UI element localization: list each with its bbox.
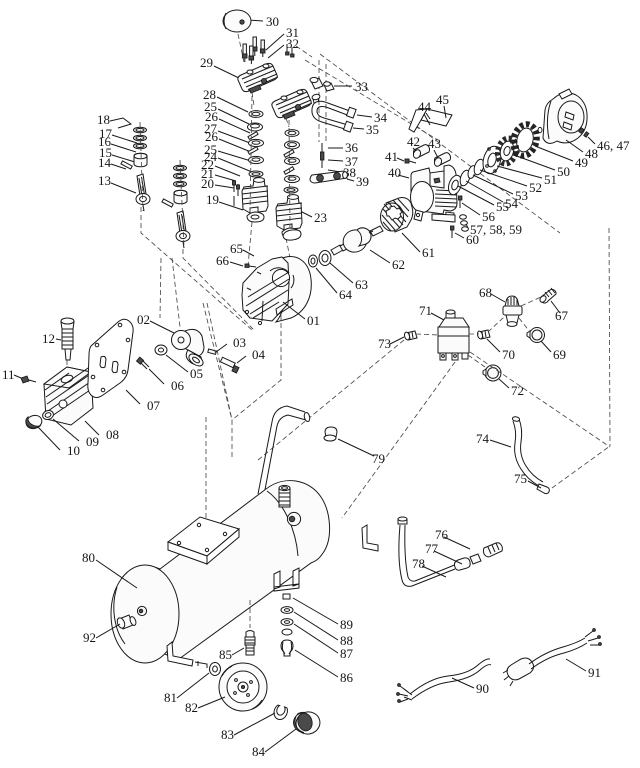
svg-text:04: 04 [252, 347, 266, 362]
svg-text:91: 91 [588, 665, 601, 680]
svg-text:45: 45 [436, 92, 449, 107]
svg-text:63: 63 [355, 277, 368, 292]
svg-text:71: 71 [419, 303, 432, 318]
svg-text:41: 41 [385, 149, 398, 164]
svg-text:68: 68 [479, 285, 492, 300]
svg-text:74: 74 [476, 431, 490, 446]
svg-text:36: 36 [345, 140, 359, 155]
svg-text:75: 75 [514, 471, 527, 486]
svg-text:19: 19 [206, 192, 219, 207]
svg-text:84: 84 [252, 744, 266, 759]
svg-text:60: 60 [466, 232, 479, 247]
svg-text:10: 10 [67, 443, 80, 458]
svg-text:40: 40 [388, 165, 401, 180]
svg-text:90: 90 [476, 681, 489, 696]
svg-text:65: 65 [230, 241, 243, 256]
svg-text:39: 39 [356, 174, 369, 189]
svg-text:11: 11 [2, 367, 15, 382]
svg-text:85: 85 [219, 647, 232, 662]
svg-text:29: 29 [200, 55, 213, 70]
svg-text:07: 07 [147, 398, 161, 413]
svg-text:76: 76 [435, 527, 449, 542]
svg-text:79: 79 [372, 451, 385, 466]
svg-text:80: 80 [82, 550, 95, 565]
svg-text:66: 66 [216, 253, 230, 268]
svg-text:86: 86 [340, 670, 354, 685]
svg-text:67: 67 [555, 308, 569, 323]
svg-text:64: 64 [339, 287, 353, 302]
svg-text:03: 03 [233, 335, 246, 350]
svg-text:89: 89 [340, 617, 353, 632]
svg-text:72: 72 [511, 383, 524, 398]
svg-text:46, 47: 46, 47 [597, 138, 630, 153]
svg-text:18: 18 [97, 112, 110, 127]
svg-text:12: 12 [42, 331, 55, 346]
svg-text:09: 09 [86, 434, 99, 449]
svg-text:78: 78 [412, 556, 425, 571]
svg-text:33: 33 [355, 79, 368, 94]
svg-text:42: 42 [407, 134, 420, 149]
svg-text:87: 87 [340, 646, 354, 661]
svg-text:20: 20 [201, 176, 214, 191]
svg-text:49: 49 [575, 155, 588, 170]
svg-text:61: 61 [422, 245, 435, 260]
svg-text:77: 77 [425, 541, 439, 556]
svg-text:92: 92 [83, 630, 96, 645]
svg-text:70: 70 [502, 347, 515, 362]
svg-text:30: 30 [266, 14, 279, 29]
svg-text:05: 05 [190, 366, 203, 381]
svg-text:81: 81 [164, 690, 177, 705]
svg-text:44: 44 [418, 99, 432, 114]
svg-text:51: 51 [544, 172, 557, 187]
svg-text:82: 82 [185, 700, 198, 715]
svg-text:23: 23 [314, 210, 327, 225]
svg-text:52: 52 [529, 180, 542, 195]
svg-text:13: 13 [98, 173, 111, 188]
svg-text:73: 73 [378, 336, 391, 351]
svg-text:01: 01 [307, 313, 320, 328]
svg-text:14: 14 [98, 155, 112, 170]
svg-text:43: 43 [428, 136, 441, 151]
svg-text:69: 69 [553, 347, 566, 362]
svg-text:02: 02 [137, 312, 150, 327]
svg-text:55: 55 [496, 199, 509, 214]
svg-text:06: 06 [171, 378, 185, 393]
svg-text:50: 50 [557, 164, 570, 179]
svg-text:62: 62 [392, 257, 405, 272]
svg-text:35: 35 [366, 122, 379, 137]
svg-text:83: 83 [221, 727, 234, 742]
svg-text:08: 08 [106, 427, 119, 442]
